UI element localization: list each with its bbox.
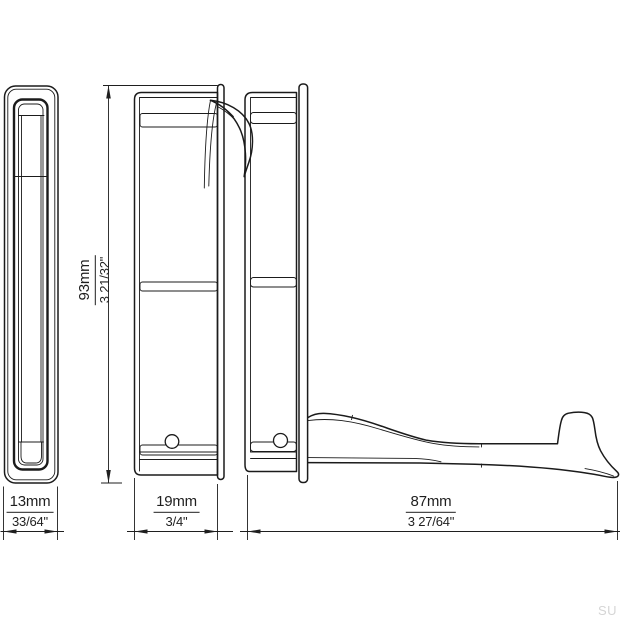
extended-hook-arm — [308, 412, 619, 477]
arrowhead-left — [135, 529, 148, 533]
reach-inch-value: 3 27/64" — [406, 513, 456, 529]
watermark-text: SU — [598, 603, 617, 618]
back-plate — [299, 84, 308, 483]
screw-hole — [274, 434, 288, 448]
screw-hole — [165, 435, 179, 449]
depth-inch-value: 3/4" — [164, 513, 190, 529]
height-inch-value: 3 21/32" — [96, 255, 112, 305]
arrowhead-left — [248, 529, 261, 533]
height-dimension — [101, 86, 218, 484]
arrowhead-right — [605, 529, 618, 533]
depth-mm-value: 19mm — [153, 494, 200, 511]
side-view-extended-drawing — [245, 84, 619, 483]
back-plate — [218, 85, 225, 480]
reach-mm-value: 87mm — [408, 494, 455, 511]
side-view-folded-drawing — [135, 85, 253, 480]
front-view-drawing — [5, 86, 59, 483]
technical-drawing-canvas: 13mm 33/64" 19mm 3/4" 87mm 3 27/64" 93mm… — [0, 0, 620, 620]
width-dimension-label: 13mm 33/64" — [7, 494, 54, 528]
arrowhead-right — [45, 529, 58, 533]
reach-dimension-label: 87mm 3 27/64" — [406, 494, 456, 528]
arrowhead-up — [106, 86, 111, 99]
drawing-linework — [0, 0, 620, 620]
height-mm-value: 93mm — [77, 257, 94, 304]
depth-dimension-label: 19mm 3/4" — [153, 494, 200, 528]
folded-arm-tip-front — [21, 442, 42, 463]
recess-outline — [14, 100, 48, 470]
arrowhead-left — [4, 529, 17, 533]
arrowhead-down — [106, 470, 111, 483]
width-mm-value: 13mm — [7, 494, 54, 511]
height-dimension-label: 93mm 3 21/32" — [77, 255, 111, 305]
width-inch-value: 33/64" — [10, 513, 50, 529]
arrowhead-right — [205, 529, 218, 533]
